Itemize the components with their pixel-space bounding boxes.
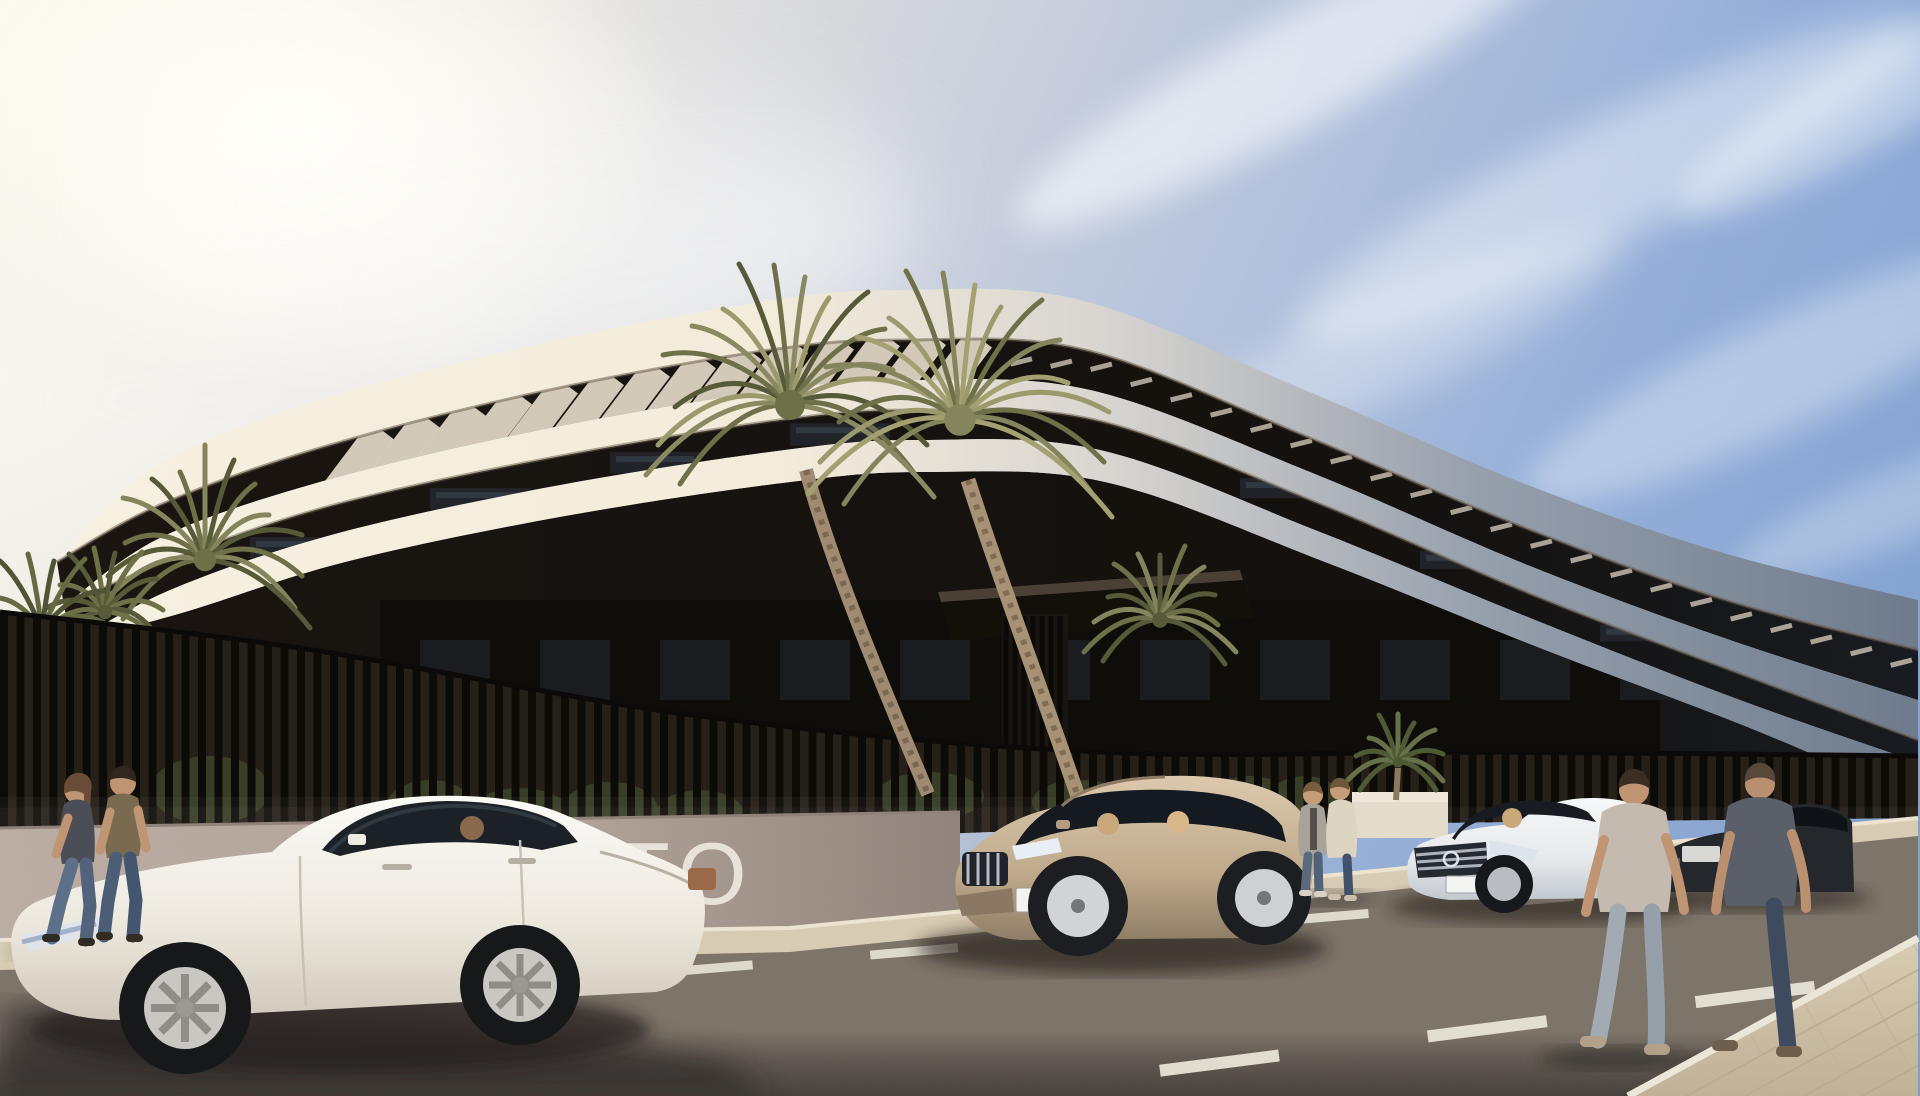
driver-head — [460, 816, 484, 840]
palm-trunk — [1396, 768, 1398, 800]
shoe — [42, 934, 60, 942]
scene-svg: TO — [0, 0, 1920, 1096]
license-plate — [1682, 846, 1720, 862]
leg — [1652, 912, 1657, 1046]
shoe — [1776, 1046, 1802, 1057]
shoe — [1644, 1044, 1670, 1055]
palm-crown — [194, 549, 216, 571]
shoe — [1314, 891, 1327, 897]
leg — [1347, 858, 1349, 897]
shoe — [1299, 890, 1312, 896]
driver-head — [1167, 811, 1189, 833]
shoe — [78, 938, 95, 946]
t-shirt — [1722, 797, 1797, 906]
shoe — [1712, 1040, 1738, 1051]
palm-crown — [98, 605, 112, 619]
inner-shirt — [1310, 808, 1317, 850]
rendering-canvas: TO — [0, 0, 1920, 1096]
sweater — [1326, 800, 1357, 859]
palm-crown — [1152, 612, 1168, 628]
shoe — [1328, 894, 1341, 900]
leg — [86, 864, 90, 940]
side-mirror — [1056, 820, 1070, 829]
t-shirt — [1596, 803, 1671, 912]
door-handle — [382, 864, 412, 870]
leg — [1318, 856, 1319, 893]
shoe — [1580, 1036, 1606, 1047]
passenger-head — [1097, 813, 1119, 835]
side-mirror — [348, 834, 366, 845]
palm-crown — [944, 404, 976, 436]
palm-crown — [775, 390, 805, 420]
door-handle — [508, 858, 536, 864]
shoe — [126, 934, 143, 942]
driver-head — [1502, 808, 1522, 828]
shoe — [96, 932, 113, 940]
shoe — [1344, 895, 1357, 901]
leg — [1305, 856, 1308, 892]
palm-crown — [1393, 757, 1403, 767]
tail-light — [688, 868, 716, 890]
front-rim — [1487, 867, 1521, 901]
leg — [130, 858, 136, 936]
